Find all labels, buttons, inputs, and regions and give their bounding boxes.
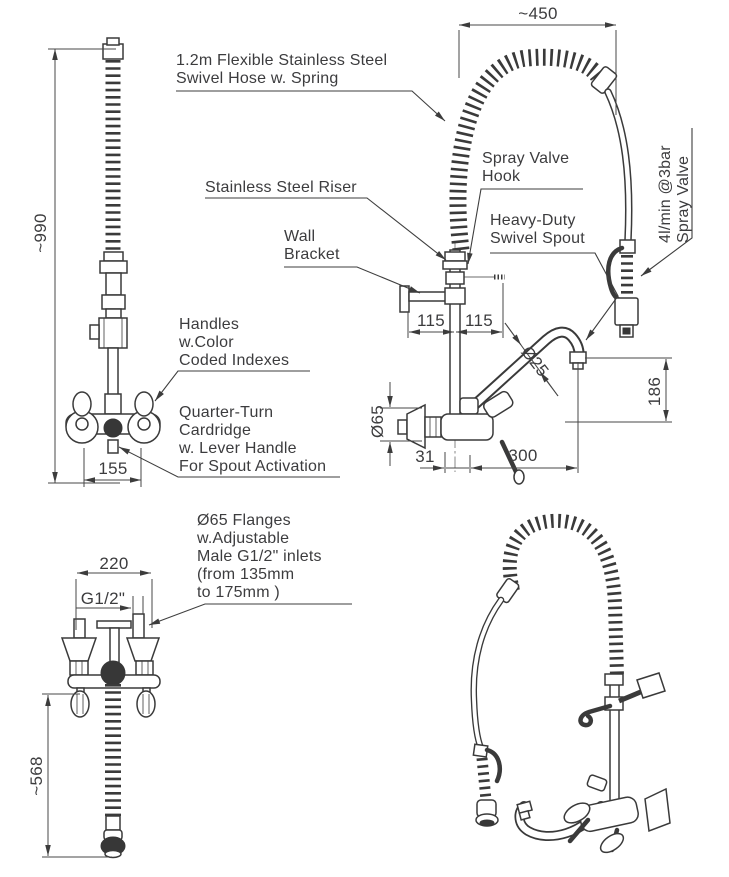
dim-total-height: ~990 [31,207,51,259]
callout-cartridge: Quarter-Turn Cardridge w. Lever Handle F… [179,404,326,476]
callout-handles: Handles w.Color Coded Indexes [179,316,289,370]
dim-hang-height: ~568 [27,746,47,806]
dim-flange-diameter: Ø65 [368,394,388,449]
dim-arch-width: ~450 [508,4,568,24]
callout-wall-bracket: Wall Bracket [284,228,340,264]
callout-swivel-spout: Heavy-Duty Swivel Spout [490,212,585,248]
callout-spray-valve-hook: Spray Valve Hook [482,150,569,186]
callout-spray-valve: 4l/min @3bar Spray Valve [657,125,693,243]
pre-rinse-unit-technical-drawing: 1.2m Flexible Stainless Steel Swivel Hos… [0,0,729,877]
dim-wall-offset: 31 [405,447,445,467]
dim-bracket-right: 115 [457,311,501,331]
callout-flanges: Ø65 Flanges w.Adjustable Male G1/2" inle… [197,512,322,602]
dim-inlet-width: 220 [88,554,140,574]
dim-bracket-left: 115 [409,311,453,331]
dim-handle-centers: 155 [88,459,138,479]
view-front [398,57,638,484]
view-perspective [473,521,670,856]
dim-inlet-thread: G1/2" [76,589,130,609]
dim-spout-reach: 300 [494,446,552,466]
drawing-linework [0,0,729,877]
callout-hose: 1.2m Flexible Stainless Steel Swivel Hos… [176,52,387,88]
view-side [66,38,160,453]
dim-outlet-height: 186 [645,364,665,419]
view-bottom [62,614,160,858]
callout-riser: Stainless Steel Riser [205,179,357,197]
